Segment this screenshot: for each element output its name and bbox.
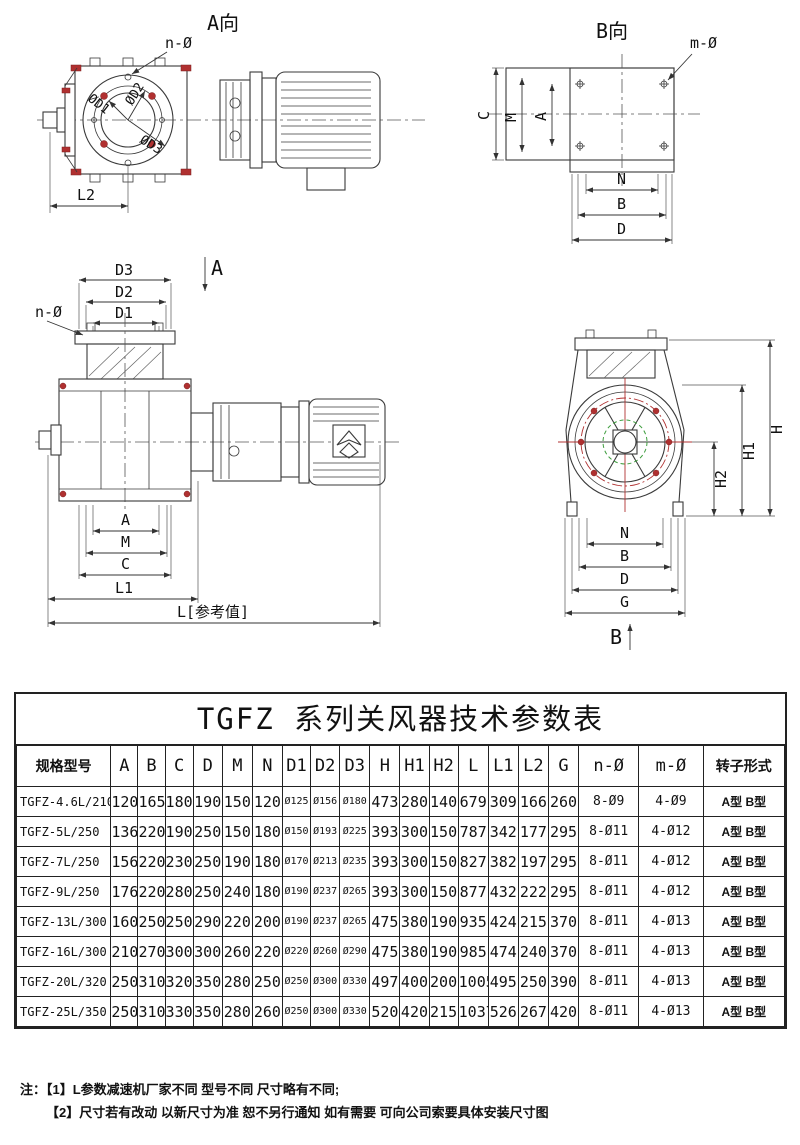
table-cell: 300	[400, 847, 429, 877]
table-cell: 230	[165, 847, 193, 877]
label-m-holes: m-Ø	[690, 34, 717, 52]
table-row: TGFZ-20L/320250310320350280250Ø250Ø300Ø3…	[17, 967, 785, 997]
column-header: n-Ø	[579, 746, 639, 787]
table-cell: 1005	[458, 967, 488, 997]
table-cell: 300	[400, 877, 429, 907]
table-cell: TGFZ-13L/300	[17, 907, 111, 937]
table-cell: 935	[458, 907, 488, 937]
column-header: M	[222, 746, 252, 787]
table-cell: 197	[518, 847, 548, 877]
table-cell: 4-Ø13	[639, 907, 703, 937]
table-cell: 1037	[458, 997, 488, 1027]
table-cell: 8-Ø11	[579, 967, 639, 997]
table-cell: 166	[518, 787, 548, 817]
label-m-front: M	[121, 533, 130, 551]
table-cell: 260	[548, 787, 578, 817]
table-cell: 220	[138, 847, 165, 877]
table-cell: 432	[488, 877, 518, 907]
table-row: TGFZ-9L/250176220280250240180Ø190Ø237Ø26…	[17, 877, 785, 907]
column-header: B	[138, 746, 165, 787]
table-cell: Ø290	[340, 937, 370, 967]
table-cell: 310	[138, 967, 165, 997]
table-cell: 526	[488, 997, 518, 1027]
label-d1: D1	[115, 304, 133, 322]
label-d: D	[617, 220, 626, 238]
table-cell: 393	[370, 847, 400, 877]
table-cell: TGFZ-9L/250	[17, 877, 111, 907]
table-cell: 150	[429, 817, 458, 847]
label-l-ref: L[参考值]	[177, 603, 249, 621]
label-g: G	[620, 593, 629, 611]
table-cell: 4-Ø13	[639, 997, 703, 1027]
label-n-holes: n-Ø	[165, 34, 192, 52]
body-bolt	[184, 383, 190, 389]
table-cell: Ø220	[282, 937, 310, 967]
note-line-1: 注：【1】L参数减速机厂家不同 型号不同 尺寸略有不同;	[20, 1078, 549, 1101]
label-l2: L2	[77, 186, 95, 204]
table-cell: 320	[165, 967, 193, 997]
table-cell: 350	[193, 967, 222, 997]
table-cell: 8-Ø11	[579, 997, 639, 1027]
table-cell: 290	[193, 907, 222, 937]
table-cell: 382	[488, 847, 518, 877]
table-cell: 176	[111, 877, 138, 907]
label-d3: D3	[115, 261, 133, 279]
table-cell: Ø180	[340, 787, 370, 817]
footnotes: 注：【1】L参数减速机厂家不同 型号不同 尺寸略有不同; 【2】尺寸若有改动 以…	[20, 1078, 549, 1124]
header-row: 规格型号ABCDMND1D2D3HH1H2LL1L2Gn-Øm-Ø转子形式	[17, 746, 785, 787]
label-h1: H1	[740, 442, 758, 460]
table-cell: 280	[222, 967, 252, 997]
table-cell: 120	[111, 787, 138, 817]
section-a-label: A	[211, 256, 223, 280]
table-cell: 280	[165, 877, 193, 907]
column-header: m-Ø	[639, 746, 703, 787]
table-cell: 393	[370, 877, 400, 907]
table-cell: 270	[138, 937, 165, 967]
parameter-table: TGFZ 系列关风器技术参数表 规格型号ABCDMND1D2D3HH1H2LL1…	[14, 692, 787, 1029]
table-cell: 300	[165, 937, 193, 967]
label-n-holes-front: n-Ø	[35, 303, 62, 321]
table-cell: Ø156	[311, 787, 340, 817]
table-cell: 473	[370, 787, 400, 817]
table-cell: 190	[222, 847, 252, 877]
table-row: TGFZ-4.6L/210120165180190150120Ø125Ø156Ø…	[17, 787, 785, 817]
table-cell: 420	[548, 997, 578, 1027]
column-header: D2	[311, 746, 340, 787]
motor-logo	[333, 425, 365, 457]
column-header: H2	[429, 746, 458, 787]
note-line-2: 【2】尺寸若有改动 以新尺寸为准 恕不另行通知 如有需要 可向公司索要具体安装尺…	[46, 1101, 549, 1124]
table-cell: 370	[548, 937, 578, 967]
table-cell: 190	[193, 787, 222, 817]
table-cell: 120	[252, 787, 282, 817]
table-cell: 679	[458, 787, 488, 817]
flange-bolt	[101, 141, 108, 148]
table-cell: 4-Ø13	[639, 937, 703, 967]
parameter-grid: 规格型号ABCDMND1D2D3HH1H2LL1L2Gn-Øm-Ø转子形式 TG…	[16, 745, 785, 1027]
table-cell: TGFZ-16L/300	[17, 937, 111, 967]
table-cell: Ø300	[311, 967, 340, 997]
label-a: A	[532, 112, 550, 121]
table-cell: 190	[429, 907, 458, 937]
drawing-front-view: A D3 D2 D1 n-Ø	[35, 255, 460, 650]
table-cell: 295	[548, 847, 578, 877]
table-cell: 280	[400, 787, 429, 817]
table-cell: 156	[111, 847, 138, 877]
table-cell: Ø190	[282, 877, 310, 907]
table-cell: 250	[111, 967, 138, 997]
bolt-head	[62, 88, 70, 93]
column-header: H1	[400, 746, 429, 787]
drawing-view-a: A向 ØD1 ØD2 ØD3 n-Ø	[35, 8, 430, 238]
table-cell: 475	[370, 937, 400, 967]
table-cell: 495	[488, 967, 518, 997]
table-cell: A型 B型	[703, 997, 784, 1027]
table-cell: 240	[222, 877, 252, 907]
table-cell: A型 B型	[703, 787, 784, 817]
table-cell: 350	[193, 997, 222, 1027]
body-bolt	[60, 491, 66, 497]
table-cell: 210	[111, 937, 138, 967]
label-m: M	[502, 113, 520, 122]
table-cell: 250	[193, 817, 222, 847]
table-cell: 497	[370, 967, 400, 997]
table-cell: 342	[488, 817, 518, 847]
bolt-head	[181, 169, 191, 175]
table-cell: 475	[370, 907, 400, 937]
table-row: TGFZ-5L/250136220190250150180Ø150Ø193Ø22…	[17, 817, 785, 847]
label-l1: L1	[115, 579, 133, 597]
section-b-label: B	[610, 625, 622, 649]
label-h: H	[768, 425, 786, 434]
column-header: C	[165, 746, 193, 787]
label-d-side: D	[620, 570, 629, 588]
body-bolt	[184, 491, 190, 497]
label-b: B	[617, 195, 626, 213]
table-cell: 280	[222, 997, 252, 1027]
label-n: N	[617, 170, 626, 188]
table-cell: 267	[518, 997, 548, 1027]
table-cell: 390	[548, 967, 578, 997]
label-phi-d3: ØD3	[137, 133, 165, 158]
column-header: H	[370, 746, 400, 787]
table-cell: 4-Ø12	[639, 817, 703, 847]
table-cell: A型 B型	[703, 937, 784, 967]
column-header: A	[111, 746, 138, 787]
table-cell: Ø265	[340, 907, 370, 937]
table-cell: 260	[222, 937, 252, 967]
table-cell: 240	[518, 937, 548, 967]
table-cell: 222	[518, 877, 548, 907]
table-cell: Ø330	[340, 997, 370, 1027]
table-cell: 370	[548, 907, 578, 937]
label-n-side: N	[620, 524, 629, 542]
drawing-view-b: B向 m-Ø C M A N B	[468, 8, 793, 253]
table-cell: 200	[429, 967, 458, 997]
view-b-title: B向	[596, 19, 628, 43]
column-header: D1	[282, 746, 310, 787]
column-header: L	[458, 746, 488, 787]
table-cell: 190	[429, 937, 458, 967]
table-cell: Ø237	[311, 877, 340, 907]
table-cell: 250	[193, 877, 222, 907]
label-c: C	[475, 111, 493, 120]
table-cell: 424	[488, 907, 518, 937]
table-cell: 260	[252, 997, 282, 1027]
table-title: TGFZ 系列关风器技术参数表	[16, 694, 785, 745]
table-cell: TGFZ-5L/250	[17, 817, 111, 847]
table-cell: 220	[138, 817, 165, 847]
table-cell: 420	[400, 997, 429, 1027]
table-cell: Ø260	[311, 937, 340, 967]
table-cell: 8-Ø11	[579, 877, 639, 907]
table-cell: 380	[400, 907, 429, 937]
technical-sheet-page: A向 ØD1 ØD2 ØD3 n-Ø	[0, 0, 800, 1145]
table-cell: 250	[138, 907, 165, 937]
table-cell: 300	[400, 817, 429, 847]
label-c-front: C	[121, 555, 130, 573]
table-cell: 4-Ø12	[639, 877, 703, 907]
table-cell: Ø225	[340, 817, 370, 847]
table-cell: 8-Ø9	[579, 787, 639, 817]
view-a-title: A向	[207, 11, 239, 35]
table-cell: 250	[165, 907, 193, 937]
table-cell: Ø265	[340, 877, 370, 907]
table-cell: 8-Ø11	[579, 847, 639, 877]
table-cell: 8-Ø11	[579, 907, 639, 937]
table-row: TGFZ-16L/300210270300300260220Ø220Ø260Ø2…	[17, 937, 785, 967]
column-header: L2	[518, 746, 548, 787]
table-cell: 215	[429, 997, 458, 1027]
table-cell: Ø190	[282, 907, 310, 937]
table-cell: A型 B型	[703, 967, 784, 997]
table-cell: 190	[165, 817, 193, 847]
column-header: L1	[488, 746, 518, 787]
table-cell: 180	[252, 877, 282, 907]
table-cell: 215	[518, 907, 548, 937]
table-cell: 985	[458, 937, 488, 967]
table-cell: 295	[548, 817, 578, 847]
table-cell: 250	[193, 847, 222, 877]
table-cell: 136	[111, 817, 138, 847]
table-cell: Ø193	[311, 817, 340, 847]
label-phi-d1: ØD1	[85, 91, 113, 117]
table-cell: A型 B型	[703, 907, 784, 937]
table-cell: TGFZ-25L/350	[17, 997, 111, 1027]
table-cell: Ø125	[282, 787, 310, 817]
table-cell: 4-Ø9	[639, 787, 703, 817]
note-prefix: 注：	[20, 1082, 46, 1097]
column-header: D	[193, 746, 222, 787]
label-b-side: B	[620, 547, 629, 565]
table-cell: 8-Ø11	[579, 817, 639, 847]
table-row: TGFZ-7L/250156220230250190180Ø170Ø213Ø23…	[17, 847, 785, 877]
table-cell: 250	[518, 967, 548, 997]
column-header: G	[548, 746, 578, 787]
table-cell: Ø330	[340, 967, 370, 997]
body-bolt	[60, 383, 66, 389]
bolt-head	[62, 147, 70, 152]
table-cell: 380	[400, 937, 429, 967]
table-cell: 787	[458, 817, 488, 847]
bolt-head	[181, 65, 191, 71]
table-cell: Ø237	[311, 907, 340, 937]
drawing-side-view: H H1 H2 N B D G B	[530, 310, 800, 655]
table-cell: 309	[488, 787, 518, 817]
table-cell: Ø250	[282, 967, 310, 997]
table-cell: 160	[111, 907, 138, 937]
table-cell: A型 B型	[703, 847, 784, 877]
label-a-front: A	[121, 511, 130, 529]
table-cell: 300	[193, 937, 222, 967]
column-header: 规格型号	[17, 746, 111, 787]
column-header: D3	[340, 746, 370, 787]
table-row: TGFZ-13L/300160250250290220200Ø190Ø237Ø2…	[17, 907, 785, 937]
label-phi-d2: ØD2	[123, 80, 148, 108]
table-cell: A型 B型	[703, 817, 784, 847]
table-cell: 310	[138, 997, 165, 1027]
table-cell: 150	[429, 877, 458, 907]
table-cell: 150	[222, 817, 252, 847]
table-cell: 200	[252, 907, 282, 937]
table-cell: 520	[370, 997, 400, 1027]
table-cell: 330	[165, 997, 193, 1027]
label-d2: D2	[115, 283, 133, 301]
table-cell: 474	[488, 937, 518, 967]
table-cell: TGFZ-20L/320	[17, 967, 111, 997]
table-cell: 400	[400, 967, 429, 997]
table-cell: 165	[138, 787, 165, 817]
table-cell: Ø300	[311, 997, 340, 1027]
table-cell: 8-Ø11	[579, 937, 639, 967]
table-cell: 150	[222, 787, 252, 817]
table-cell: 180	[252, 817, 282, 847]
table-cell: 220	[138, 877, 165, 907]
table-cell: 4-Ø12	[639, 847, 703, 877]
table-cell: Ø250	[282, 997, 310, 1027]
table-cell: 220	[252, 937, 282, 967]
column-header: 转子形式	[703, 746, 784, 787]
table-cell: A型 B型	[703, 877, 784, 907]
column-header: N	[252, 746, 282, 787]
table-cell: Ø235	[340, 847, 370, 877]
label-h2: H2	[712, 470, 730, 488]
table-cell: Ø150	[282, 817, 310, 847]
table-cell: 295	[548, 877, 578, 907]
table-cell: 250	[111, 997, 138, 1027]
table-cell: TGFZ-7L/250	[17, 847, 111, 877]
table-cell: TGFZ-4.6L/210	[17, 787, 111, 817]
table-row: TGFZ-25L/350250310330350280260Ø250Ø300Ø3…	[17, 997, 785, 1027]
table-cell: 177	[518, 817, 548, 847]
table-cell: 180	[165, 787, 193, 817]
table-cell: 220	[222, 907, 252, 937]
table-cell: 250	[252, 967, 282, 997]
table-cell: 150	[429, 847, 458, 877]
table-cell: Ø213	[311, 847, 340, 877]
table-cell: 877	[458, 877, 488, 907]
table-cell: 180	[252, 847, 282, 877]
flange-bolt	[149, 93, 156, 100]
table-cell: 393	[370, 817, 400, 847]
table-cell: 140	[429, 787, 458, 817]
table-cell: 4-Ø13	[639, 967, 703, 997]
table-cell: Ø170	[282, 847, 310, 877]
table-cell: 827	[458, 847, 488, 877]
